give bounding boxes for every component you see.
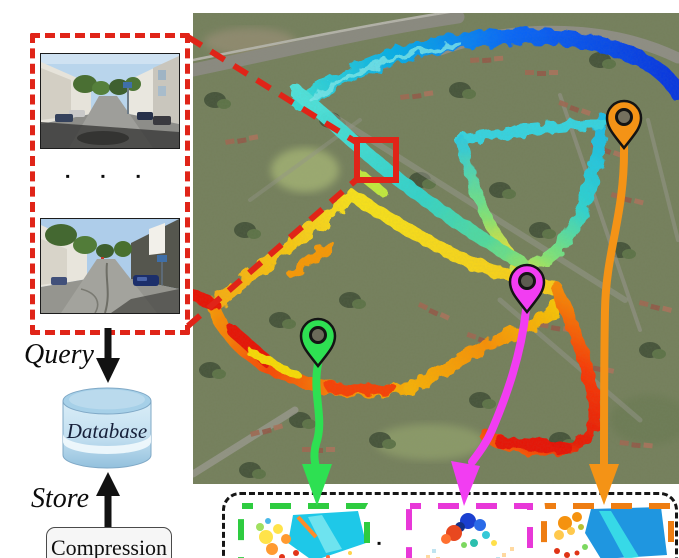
result-pointcloud-magenta bbox=[406, 503, 533, 558]
query-label: Query bbox=[24, 339, 94, 371]
database-label: Database bbox=[60, 419, 154, 444]
store-arrow-up-icon bbox=[95, 471, 121, 527]
result-pointcloud-orange bbox=[541, 503, 674, 558]
store-label: Store bbox=[31, 483, 89, 515]
street-view-photo-2 bbox=[40, 218, 180, 314]
map-texture bbox=[193, 13, 679, 484]
compression-label: Compression bbox=[51, 535, 167, 558]
compression-box: Compression bbox=[46, 527, 172, 558]
street-view-photo-1 bbox=[40, 53, 180, 149]
query-arrow-down-icon bbox=[95, 328, 121, 384]
ellipsis-dots: ▪ ▪ ▪ bbox=[58, 169, 162, 184]
figure-localization-pipeline: ▪ ▪ ▪ Query bbox=[0, 0, 679, 558]
satellite-map bbox=[193, 13, 679, 484]
result-pointcloud-green bbox=[238, 503, 370, 558]
